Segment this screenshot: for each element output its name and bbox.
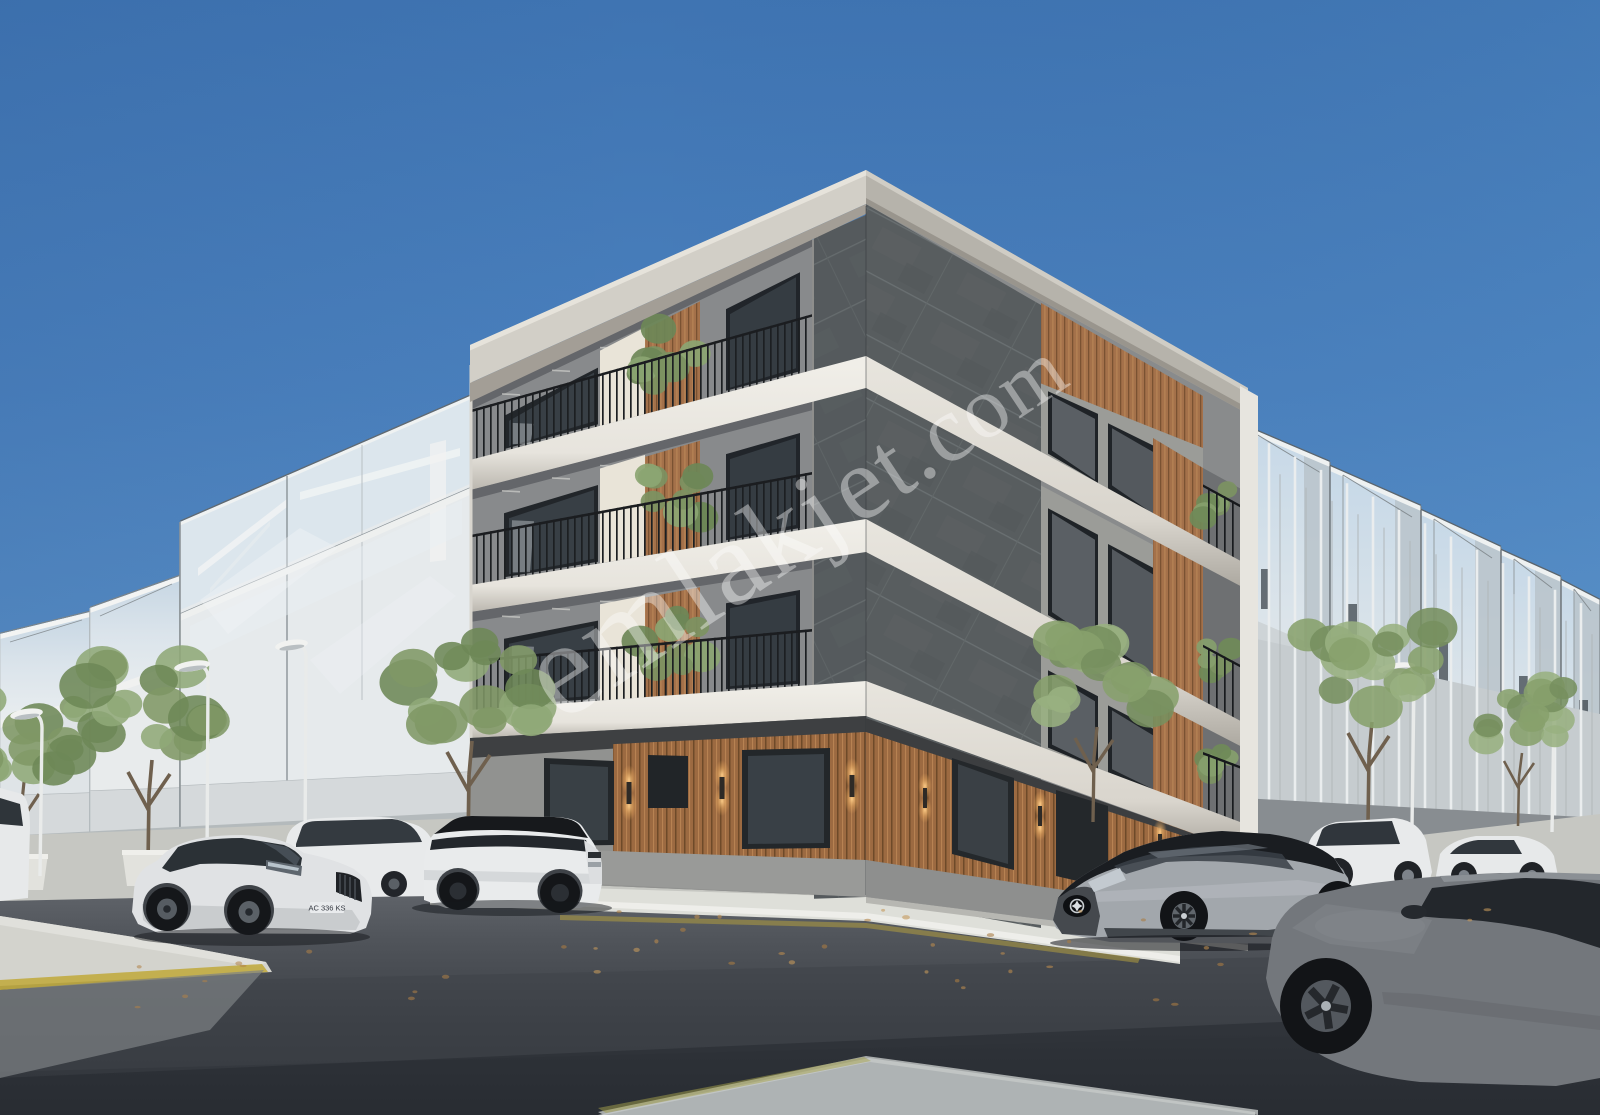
svg-text:AC 336 KS: AC 336 KS bbox=[308, 904, 345, 913]
